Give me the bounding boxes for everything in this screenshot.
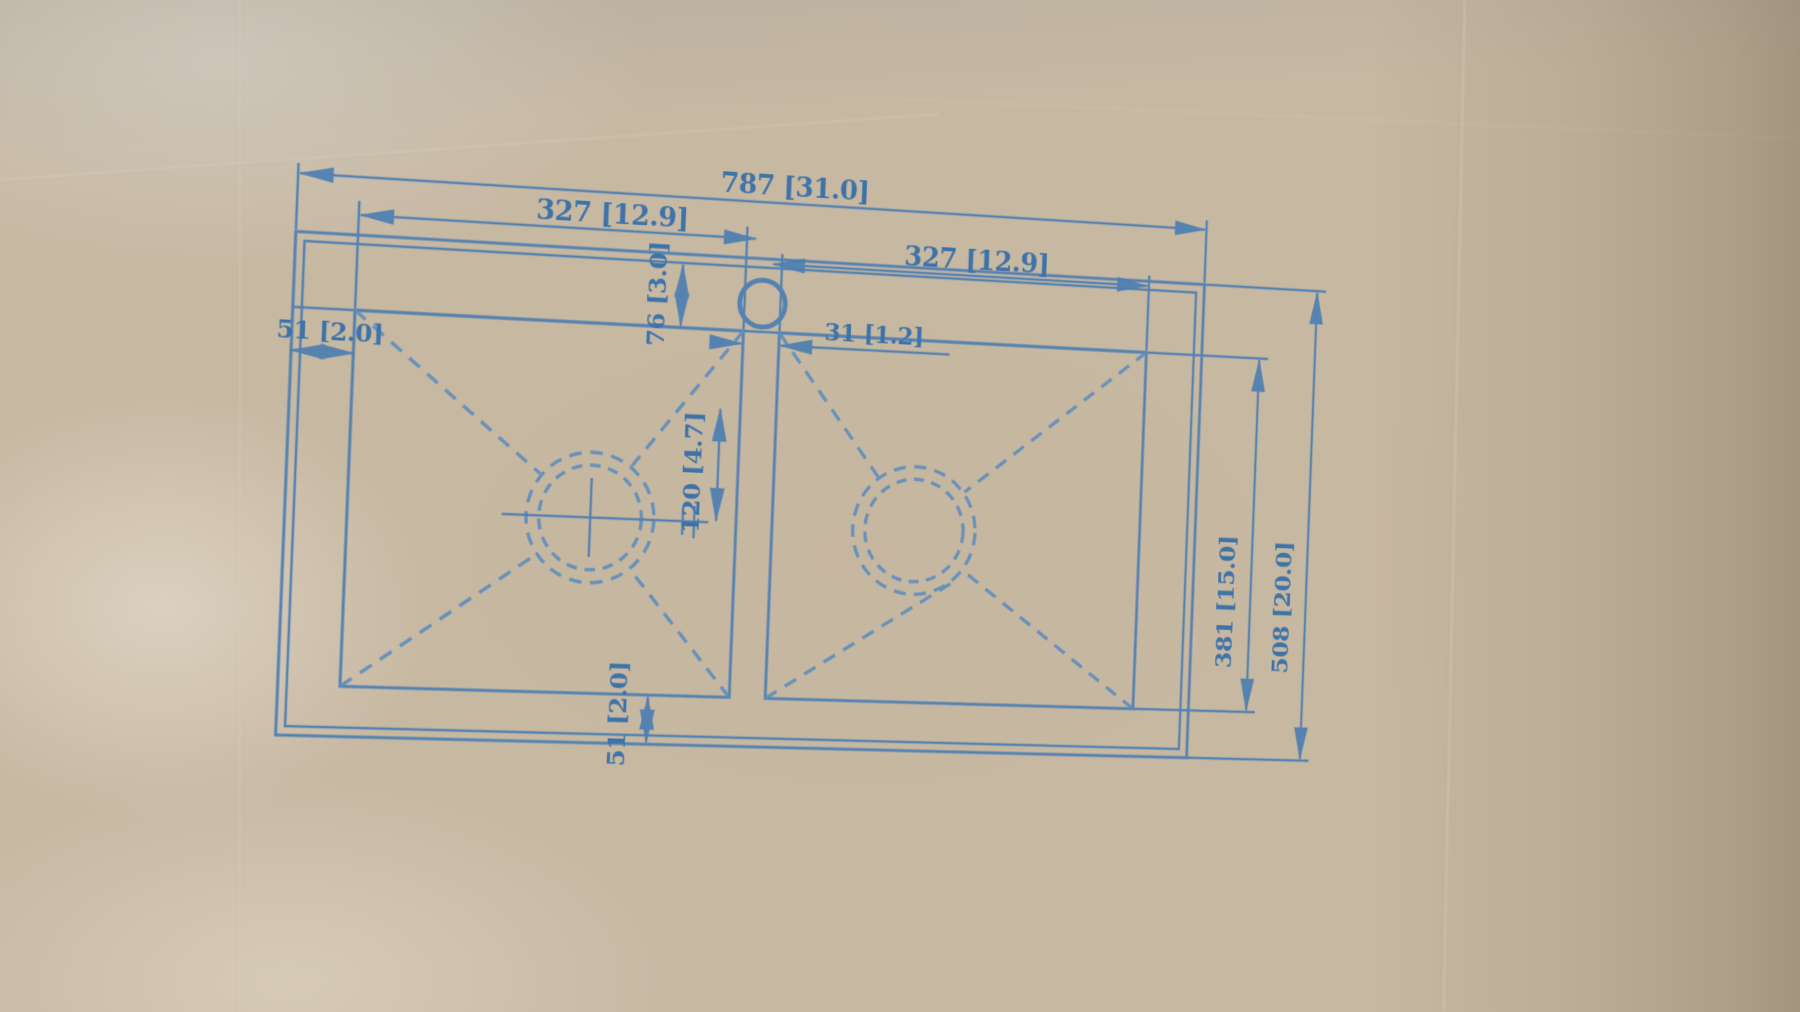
sink-outline-group [276, 163, 1329, 761]
right-drain-outer-circle [850, 464, 977, 596]
label-overall-depth: 508 [20.0] [1266, 541, 1297, 674]
printed-sink-drawing: 787 [31.0] 327 [12.9] 327 [12.9] 76 [3.0… [83, 129, 1521, 960]
right-drain-inner-circle [863, 477, 965, 583]
label-bottom-rim: 51 [2.0] [601, 661, 634, 767]
cardboard-box-photo: { "diagram": { "title": "double-bowl-sin… [0, 0, 1800, 1012]
dim-arrow-divider-left [719, 342, 741, 343]
label-left-rim: 51 [2.0] [276, 313, 384, 348]
label-drain-offset: 120 [4.7] [676, 411, 709, 533]
ext-overall-left [296, 163, 299, 229]
dim-line-overall-depth [1300, 293, 1317, 759]
sink-dimension-diagram: 787 [31.0] 327 [12.9] 327 [12.9] 76 [3.0… [83, 129, 1521, 960]
cardboard-crease-horizontal-right [900, 99, 1800, 144]
ext-bowl-bottom [1133, 709, 1255, 712]
sink-inner-rim [285, 241, 1196, 749]
left-bowl-crease-bl [340, 548, 535, 692]
left-bowl-crease-br [626, 570, 734, 697]
ext-outer-top [1204, 285, 1326, 292]
right-bowl-crease-tl [774, 333, 883, 477]
label-left-bowl-width: 327 [12.9] [536, 193, 690, 235]
ext-divider-left [744, 227, 748, 329]
ext-left-bowl-edge [355, 201, 359, 308]
dim-line-deck-height [681, 265, 683, 326]
label-divider-width: 31 [1.2] [824, 317, 924, 351]
ext-outer-bottom [1187, 758, 1309, 761]
dim-line-bowl-depth [1246, 360, 1259, 710]
label-deck-height: 76 [3.0] [641, 241, 674, 347]
right-bowl [765, 333, 1146, 709]
right-bowl-crease-br [958, 571, 1138, 709]
label-bowl-depth: 381 [15.0] [1210, 535, 1241, 669]
ext-overall-right [1205, 220, 1207, 282]
drain-centerline-vertical [589, 478, 592, 557]
dim-line-drain-offset [716, 409, 720, 521]
right-bowl-crease-tr [965, 343, 1147, 500]
